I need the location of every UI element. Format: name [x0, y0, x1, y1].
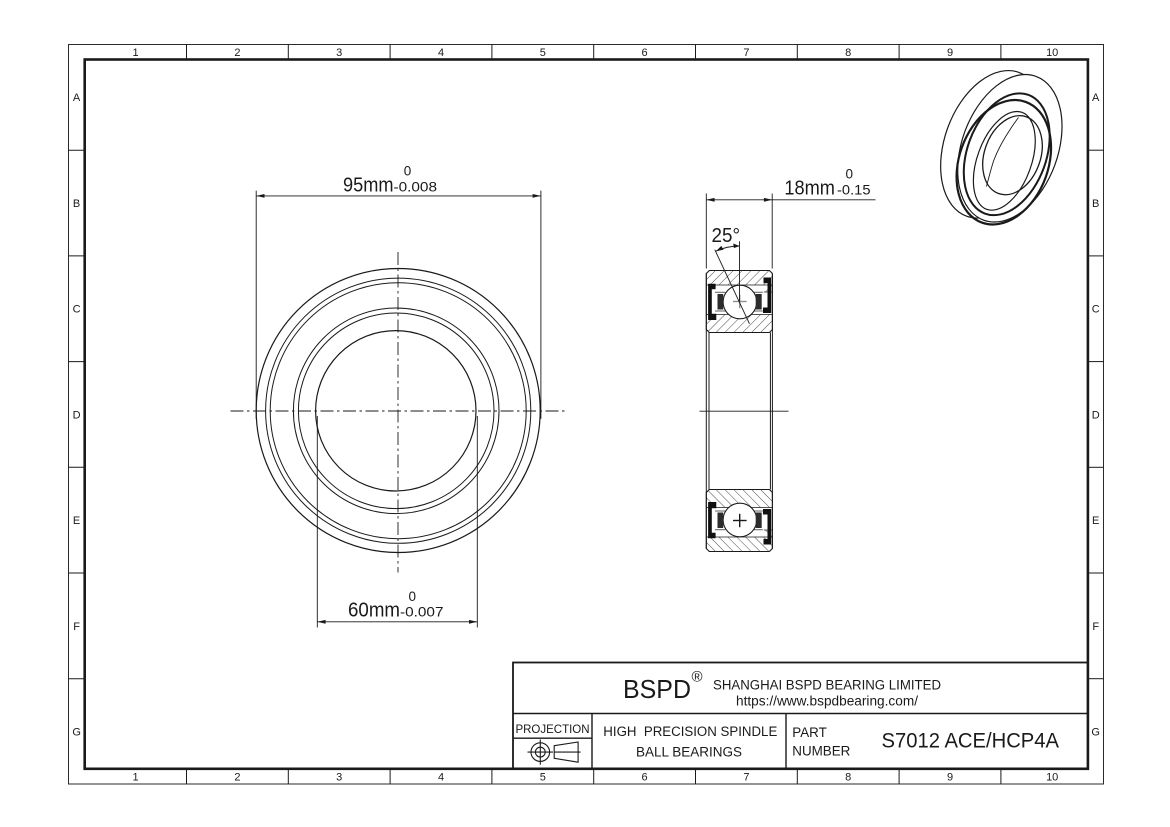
svg-text:HIGH PRECISION SPINDLE: HIGH PRECISION SPINDLE: [603, 724, 777, 739]
svg-text:60mm: 60mm: [348, 600, 400, 622]
svg-text:5: 5: [540, 47, 546, 59]
svg-text:18mm: 18mm: [784, 177, 835, 199]
svg-text:7: 7: [743, 772, 749, 784]
svg-text:G: G: [1091, 727, 1100, 739]
svg-text:®: ®: [692, 669, 703, 686]
svg-text:BSPD: BSPD: [623, 674, 691, 704]
svg-text:1: 1: [133, 772, 139, 784]
svg-text:NUMBER: NUMBER: [792, 743, 850, 758]
svg-text:4: 4: [438, 47, 444, 59]
svg-text:95mm: 95mm: [343, 174, 394, 196]
svg-text:6: 6: [642, 772, 648, 784]
svg-text:1: 1: [133, 47, 139, 59]
svg-text:4: 4: [438, 772, 444, 784]
svg-text:5: 5: [540, 772, 546, 784]
svg-text:A: A: [73, 92, 81, 104]
svg-text:3: 3: [336, 772, 342, 784]
svg-text:D: D: [73, 410, 81, 422]
svg-text:8: 8: [845, 47, 851, 59]
svg-text:PART: PART: [792, 725, 826, 740]
svg-text:PROJECTION: PROJECTION: [515, 724, 589, 736]
svg-text:F: F: [1092, 621, 1099, 633]
svg-text:-0.007: -0.007: [400, 605, 444, 620]
svg-text:9: 9: [947, 47, 953, 59]
svg-text:0: 0: [404, 164, 412, 179]
svg-text:25°: 25°: [712, 225, 741, 247]
svg-text:C: C: [73, 304, 81, 316]
svg-text:E: E: [1092, 515, 1099, 527]
svg-text:E: E: [73, 515, 80, 527]
svg-text:2: 2: [234, 47, 240, 59]
svg-text:SHANGHAI BSPD BEARING LIMITED: SHANGHAI BSPD BEARING LIMITED: [713, 677, 941, 692]
svg-text:10: 10: [1046, 47, 1058, 59]
svg-text:https://www.bspdbearing.com/: https://www.bspdbearing.com/: [736, 694, 918, 709]
svg-text:7: 7: [743, 47, 749, 59]
svg-text:D: D: [1092, 410, 1100, 422]
svg-text:F: F: [73, 621, 80, 633]
svg-text:-0.15: -0.15: [837, 182, 871, 197]
svg-text:0: 0: [846, 167, 854, 182]
svg-text:0: 0: [409, 589, 417, 604]
svg-text:S7012 ACE/HCP4A: S7012 ACE/HCP4A: [882, 729, 1060, 752]
svg-text:10: 10: [1046, 772, 1058, 784]
svg-text:8: 8: [845, 772, 851, 784]
svg-text:6: 6: [642, 47, 648, 59]
svg-text:9: 9: [947, 772, 953, 784]
svg-text:G: G: [72, 727, 81, 739]
svg-text:-0.008: -0.008: [394, 179, 438, 194]
svg-text:B: B: [73, 198, 80, 210]
svg-text:3: 3: [336, 47, 342, 59]
svg-text:BALL BEARINGS: BALL BEARINGS: [636, 745, 742, 760]
svg-text:B: B: [1092, 198, 1099, 210]
svg-text:2: 2: [234, 772, 240, 784]
svg-text:A: A: [1092, 92, 1100, 104]
svg-text:C: C: [1092, 304, 1100, 316]
